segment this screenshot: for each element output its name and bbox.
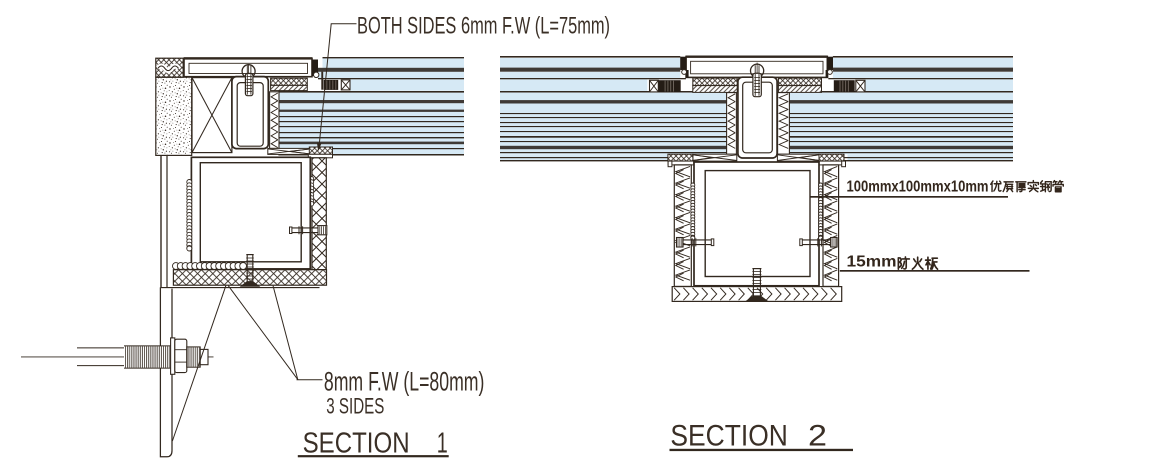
- svg-text:SECTION: SECTION: [303, 427, 410, 459]
- svg-text:15mm: 15mm: [847, 253, 897, 270]
- svg-text:8mm F.W (L=80mm): 8mm F.W (L=80mm): [324, 367, 485, 397]
- svg-text:SECTION: SECTION: [670, 419, 788, 452]
- svg-text:100mmx100mmx10mm: 100mmx100mmx10mm: [847, 179, 989, 196]
- svg-text:2: 2: [808, 419, 827, 452]
- svg-text:BOTH SIDES 6mm F.W (L=75mm): BOTH SIDES 6mm F.W (L=75mm): [357, 12, 610, 39]
- svg-text:3 SIDES: 3 SIDES: [326, 393, 384, 418]
- svg-text:1: 1: [437, 427, 448, 459]
